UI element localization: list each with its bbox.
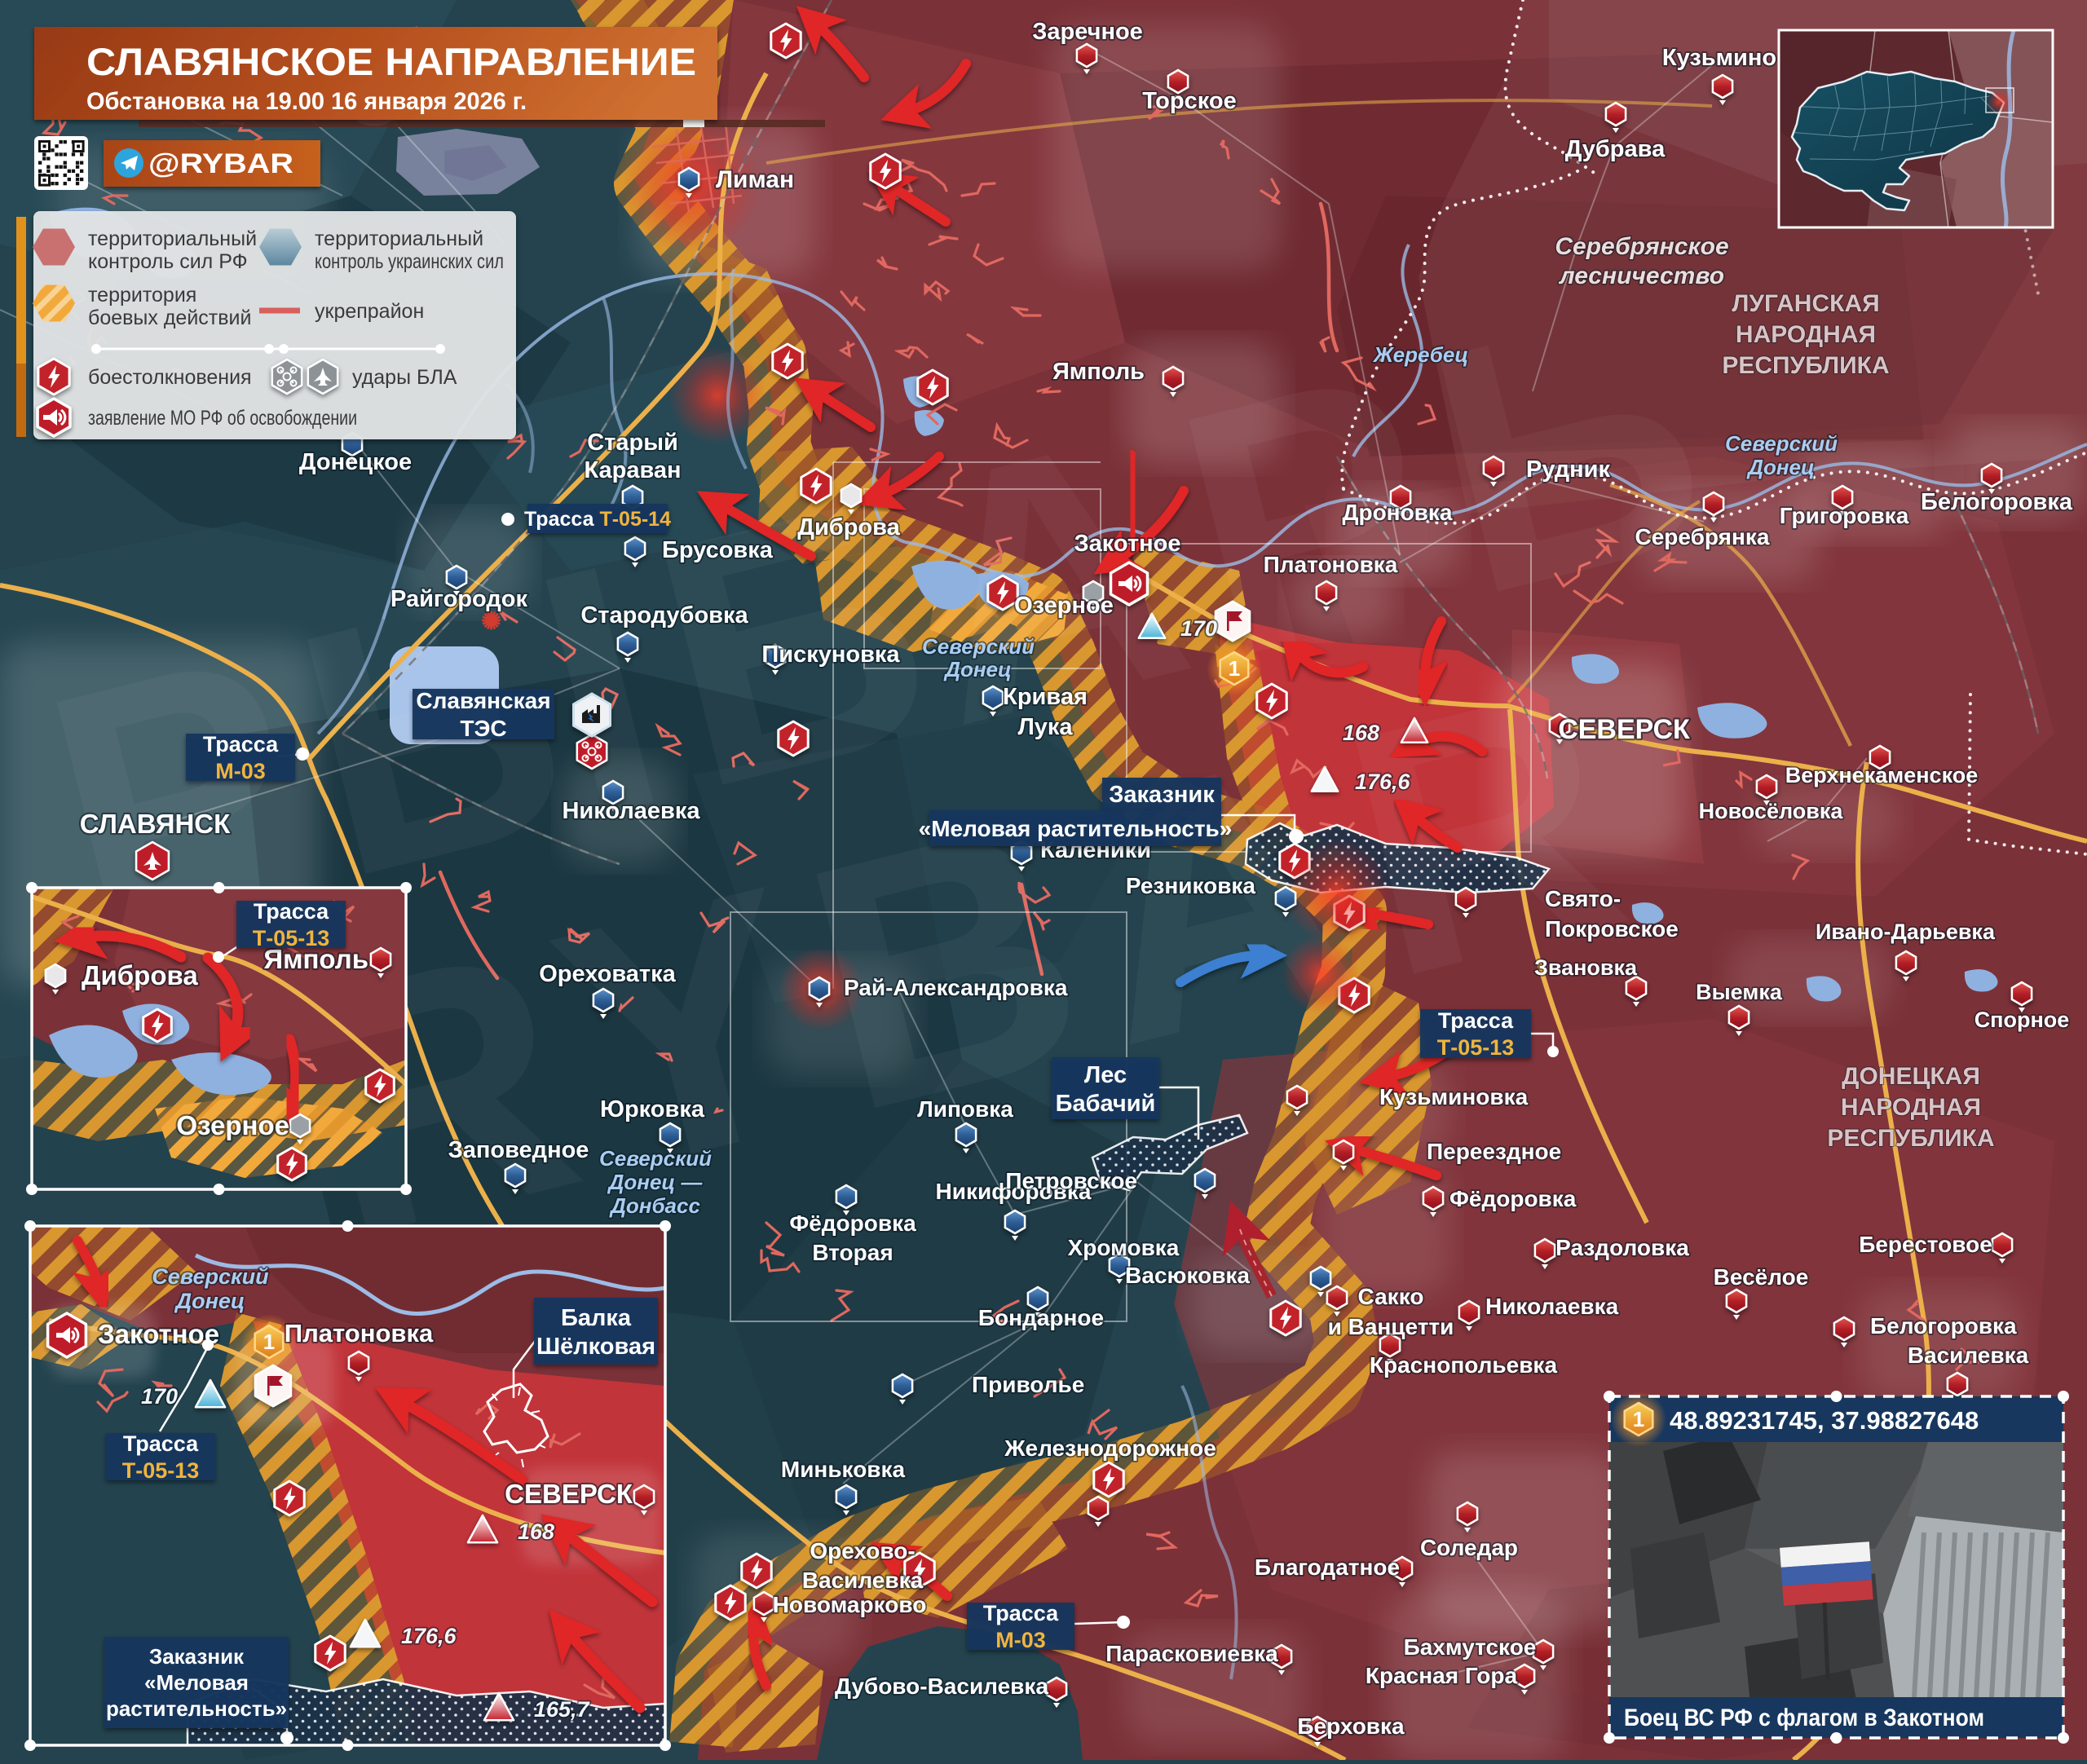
svg-text:Бахмутское: Бахмутское	[1404, 1634, 1537, 1660]
svg-text:Ямполь: Ямполь	[1052, 359, 1145, 385]
svg-text:Т-05-13: Т-05-13	[122, 1458, 200, 1483]
svg-text:Раздоловка: Раздоловка	[1555, 1235, 1689, 1260]
svg-text:Миньковка: Миньковка	[781, 1457, 906, 1482]
svg-text:РЕСПУБЛИКА: РЕСПУБЛИКА	[1722, 352, 1889, 379]
svg-text:М-03: М-03	[215, 759, 266, 783]
svg-text:Дубово-Василевка: Дубово-Василевка	[835, 1674, 1048, 1699]
svg-text:Диброва: Диброва	[797, 514, 900, 540]
svg-text:Караван: Караван	[584, 457, 681, 483]
svg-text:168: 168	[1343, 721, 1379, 745]
svg-text:Фёдоровка: Фёдоровка	[1449, 1186, 1577, 1211]
svg-text:Закотное: Закотное	[1074, 531, 1181, 557]
svg-text:Жеребец: Жеребец	[1372, 342, 1468, 367]
svg-text:Свято-: Свято-	[1545, 886, 1621, 911]
svg-text:укрепрайон: укрепрайон	[315, 300, 424, 323]
svg-text:1: 1	[1229, 656, 1240, 681]
svg-text:Заречное: Заречное	[1032, 19, 1143, 45]
svg-text:Хромовка: Хромовка	[1068, 1235, 1180, 1260]
svg-text:М-03: М-03	[995, 1628, 1046, 1652]
svg-text:Орехово-: Орехово-	[810, 1538, 915, 1563]
svg-text:Северский: Северский	[922, 634, 1035, 659]
svg-text:боестолкновения: боестолкновения	[88, 366, 252, 389]
svg-text:растительность»: растительность»	[106, 1696, 287, 1721]
svg-text:Славянская: Славянская	[416, 688, 550, 713]
svg-text:Т-05-13: Т-05-13	[253, 926, 330, 950]
svg-text:Трасса: Трасса	[1438, 1008, 1514, 1033]
svg-text:«Меловая: «Меловая	[144, 1670, 249, 1695]
svg-text:Заказник: Заказник	[1109, 782, 1215, 808]
svg-text:165,7: 165,7	[534, 1697, 591, 1722]
svg-text:РЕСПУБЛИКА: РЕСПУБЛИКА	[1827, 1125, 1994, 1152]
svg-text:Дубрава: Дубрава	[1565, 136, 1666, 162]
svg-text:СЕВЕРСК: СЕВЕРСК	[505, 1479, 633, 1509]
svg-text:контроль украинских сил: контроль украинских сил	[315, 250, 504, 273]
svg-text:территориальный: территориальный	[315, 227, 483, 250]
svg-text:Донец —: Донец —	[607, 1170, 704, 1194]
svg-text:Трасса: Трасса	[203, 732, 279, 756]
svg-text:170: 170	[1180, 616, 1217, 641]
svg-text:176,6: 176,6	[401, 1624, 457, 1648]
svg-text:Бабачий: Бабачий	[1056, 1091, 1156, 1117]
svg-text:Василевка: Василевка	[802, 1568, 924, 1593]
svg-text:Трасса: Трасса	[123, 1431, 199, 1456]
svg-text:Платоновка: Платоновка	[1264, 552, 1398, 577]
svg-text:Северский: Северский	[599, 1146, 712, 1171]
svg-text:Озерное: Озерное	[1014, 593, 1114, 619]
svg-text:Новомарково: Новомарково	[773, 1592, 927, 1617]
svg-text:Брусовка: Брусовка	[662, 537, 774, 563]
svg-text:Ивано-Дарьевка: Ивано-Дарьевка	[1816, 919, 1996, 944]
svg-text:170: 170	[141, 1384, 178, 1409]
svg-text:Спорное: Спорное	[1974, 1008, 2070, 1032]
svg-text:Выемка: Выемка	[1696, 980, 1783, 1004]
svg-text:Кузьминовка: Кузьминовка	[1379, 1084, 1529, 1109]
svg-text:Парасковиевка: Парасковиевка	[1105, 1641, 1278, 1666]
svg-text:Заповедное: Заповедное	[448, 1137, 589, 1163]
svg-text:Торское: Торское	[1142, 88, 1236, 114]
svg-text:Липовка: Липовка	[917, 1096, 1013, 1122]
svg-text:НАРОДНАЯ: НАРОДНАЯ	[1736, 321, 1876, 348]
svg-text:Закотное: Закотное	[98, 1319, 219, 1349]
svg-text:СЕВЕРСК: СЕВЕРСК	[1558, 714, 1690, 745]
svg-text:Вторая: Вторая	[812, 1240, 893, 1265]
svg-text:Благодатное: Благодатное	[1255, 1555, 1400, 1580]
svg-text:Лес: Лес	[1084, 1062, 1127, 1088]
svg-text:Николаевка: Николаевка	[562, 798, 700, 824]
svg-text:1: 1	[1633, 1407, 1644, 1431]
svg-text:Лиман: Лиман	[716, 166, 794, 193]
svg-text:Бондарное: Бондарное	[978, 1305, 1104, 1330]
svg-text:Василевка: Василевка	[1908, 1343, 2029, 1368]
svg-text:и Ванцетти: и Ванцетти	[1328, 1314, 1454, 1339]
svg-text:СЛАВЯНСК: СЛАВЯНСК	[80, 809, 231, 839]
svg-text:Петровское: Петровское	[1005, 1168, 1137, 1193]
svg-text:Северский: Северский	[152, 1264, 269, 1289]
svg-text:Трасса: Трасса	[983, 1601, 1059, 1625]
svg-text:боевых действий: боевых действий	[88, 306, 251, 329]
svg-text:Заказник: Заказник	[149, 1644, 245, 1669]
svg-text:Боец ВС РФ с флагом в Закотном: Боец ВС РФ с флагом в Закотном	[1624, 1704, 1984, 1731]
svg-text:Донец: Донец	[943, 657, 1012, 681]
svg-text:территория: территория	[88, 284, 196, 306]
svg-text:Фёдоровка: Фёдоровка	[789, 1211, 916, 1236]
svg-text:Донбасс: Донбасс	[609, 1193, 700, 1218]
svg-text:168: 168	[518, 1519, 554, 1544]
svg-text:48.89231745, 37.98827648: 48.89231745, 37.98827648	[1670, 1406, 1979, 1435]
svg-text:176,6: 176,6	[1355, 770, 1411, 794]
svg-text:Дроновка: Дроновка	[1343, 500, 1453, 525]
svg-text:контроль сил РФ: контроль сил РФ	[88, 250, 248, 273]
svg-text:Лука: Лука	[1017, 714, 1073, 740]
svg-text:Берестовое: Берестовое	[1859, 1232, 1992, 1257]
svg-text:Озерное: Озерное	[176, 1110, 289, 1140]
svg-text:Белогоровка: Белогоровка	[1870, 1313, 2017, 1338]
svg-text:Краснопольевка: Краснопольевка	[1370, 1352, 1557, 1378]
svg-text:СЛАВЯНСКОЕ НАПРАВЛЕНИЕ: СЛАВЯНСКОЕ НАПРАВЛЕНИЕ	[86, 40, 696, 83]
svg-text:Новосёловка: Новосёловка	[1699, 799, 1844, 823]
svg-text:Стародубовка: Стародубовка	[580, 602, 748, 628]
svg-text:ДОНЕЦКАЯ: ДОНЕЦКАЯ	[1842, 1063, 1980, 1090]
svg-text:Сакко: Сакко	[1358, 1284, 1424, 1309]
svg-text:Покровское: Покровское	[1545, 916, 1679, 942]
svg-text:Железнодорожное: Железнодорожное	[1004, 1435, 1216, 1461]
svg-text:Донецкое: Донецкое	[299, 449, 412, 475]
svg-text:ЛУГАНСКАЯ: ЛУГАНСКАЯ	[1732, 290, 1879, 317]
svg-text:Рай-Александровка: Рай-Александровка	[844, 975, 1068, 1000]
svg-text:1: 1	[263, 1330, 275, 1354]
svg-text:Звановка: Звановка	[1534, 955, 1638, 980]
svg-text:Обстановка на 19.00 16 января: Обстановка на 19.00 16 января 2026 г.	[86, 88, 527, 115]
svg-text:Шёлковая: Шёлковая	[536, 1334, 655, 1360]
svg-text:Райгородок: Райгородок	[390, 586, 527, 612]
svg-text:лесничество: лесничество	[1558, 262, 1724, 289]
svg-text:Кузьмино: Кузьмино	[1662, 45, 1776, 71]
svg-text:Т-05-13: Т-05-13	[1437, 1035, 1515, 1060]
svg-text:НАРОДНАЯ: НАРОДНАЯ	[1841, 1094, 1981, 1121]
svg-text:Весёлое: Весёлое	[1714, 1264, 1809, 1290]
svg-text:Серебрянское: Серебрянское	[1555, 233, 1728, 260]
svg-text:@RYBAR: @RYBAR	[148, 148, 293, 179]
svg-text:Старый: Старый	[587, 430, 678, 456]
svg-text:Северский: Северский	[1725, 431, 1838, 456]
svg-text:Пискуновка: Пискуновка	[761, 642, 900, 668]
svg-text:Балка: Балка	[561, 1305, 632, 1331]
svg-text:Кривая: Кривая	[1003, 684, 1088, 710]
svg-text:«Меловая растительность»: «Меловая растительность»	[919, 816, 1233, 841]
svg-text:Николаевка: Николаевка	[1485, 1294, 1619, 1319]
svg-text:заявление МО РФ об освобождени: заявление МО РФ об освобождении	[88, 407, 357, 430]
svg-text:Белогоровка: Белогоровка	[1921, 489, 2073, 515]
svg-text:Донец: Донец	[1746, 455, 1815, 479]
svg-text:Григоровка: Григоровка	[1780, 503, 1909, 528]
svg-text:Приволье: Приволье	[972, 1372, 1084, 1397]
svg-text:Серебрянка: Серебрянка	[1635, 524, 1770, 549]
svg-text:Красная Гора: Красная Гора	[1366, 1663, 1518, 1688]
svg-text:Диброва: Диброва	[82, 960, 198, 990]
svg-text:Переездное: Переездное	[1427, 1139, 1561, 1164]
svg-text:Юрковка: Юрковка	[600, 1096, 705, 1122]
svg-text:Резниковка: Резниковка	[1126, 873, 1256, 898]
svg-text:Ореховатка: Ореховатка	[539, 961, 676, 987]
svg-text:Васюковка: Васюковка	[1125, 1263, 1250, 1288]
svg-text:Донец: Донец	[174, 1289, 245, 1313]
svg-text:удары БЛА: удары БЛА	[352, 366, 457, 389]
svg-text:территориальный: территориальный	[88, 227, 257, 250]
svg-text:Рудник: Рудник	[1526, 456, 1611, 483]
svg-text:Трасса: Трасса	[254, 899, 329, 924]
svg-text:Верхнекаменское: Верхнекаменское	[1785, 763, 1979, 787]
svg-text:Берховка: Берховка	[1297, 1713, 1405, 1739]
svg-text:Соледар: Соледар	[1420, 1535, 1518, 1560]
svg-text:Платоновка: Платоновка	[285, 1319, 434, 1347]
svg-text:ТЭС: ТЭС	[460, 716, 506, 741]
svg-text:Трасса Т-05-14: Трасса Т-05-14	[524, 508, 671, 531]
